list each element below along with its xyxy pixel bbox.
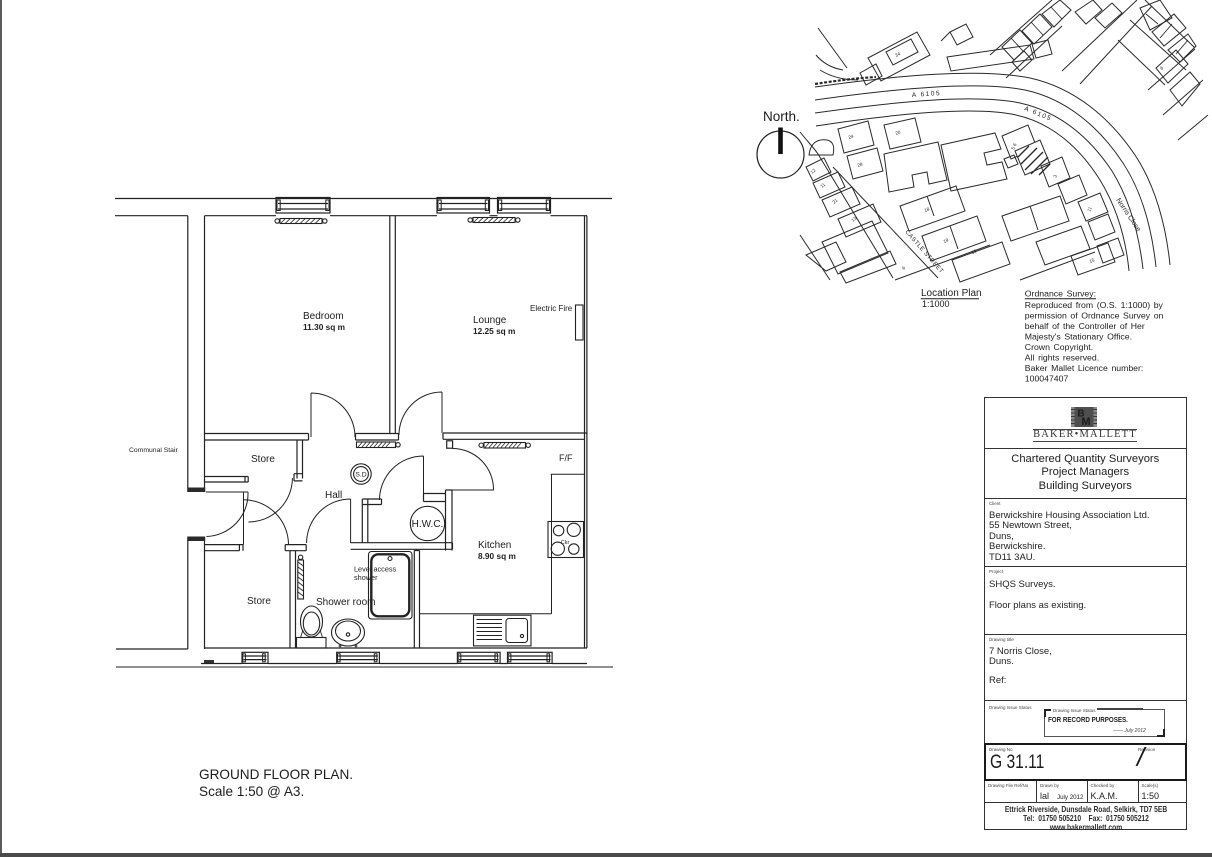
svg-text:Reproduced from (O.S. 1:1000): Reproduced from (O.S. 1:1000) by	[1025, 300, 1164, 310]
svg-text:28: 28	[857, 161, 864, 167]
svg-text:6: 6	[901, 265, 907, 271]
svg-text:15: 15	[1089, 257, 1096, 264]
svg-text:19: 19	[943, 237, 950, 244]
svg-text:100047407: 100047407	[1025, 374, 1069, 384]
svg-text:Norris Close: Norris Close	[1114, 197, 1141, 233]
svg-text:behalf of the Controller of He: behalf of the Controller of Her	[1025, 321, 1145, 331]
svg-text:18: 18	[924, 206, 931, 213]
svg-text:Baker Mallet Licence number:: Baker Mallet Licence number:	[1025, 363, 1144, 373]
svg-text:All rights reserved.: All rights reserved.	[1025, 353, 1099, 363]
svg-text:Ordnance Survey:: Ordnance Survey:	[1025, 289, 1096, 299]
svg-text:11: 11	[819, 182, 826, 189]
svg-text:20: 20	[895, 129, 902, 135]
svg-text:5 6: 5 6	[1010, 142, 1017, 150]
svg-text:Location Plan: Location Plan	[921, 288, 982, 299]
svg-text:M: M	[1081, 416, 1090, 427]
svg-text:permission of Ordnance Survey: permission of Ordnance Survey on	[1025, 311, 1164, 321]
svg-text:Crown Copyright.: Crown Copyright.	[1025, 342, 1093, 352]
svg-text:A 6105: A 6105	[912, 90, 942, 99]
svg-text:8: 8	[1159, 65, 1165, 70]
svg-text:12: 12	[809, 167, 816, 174]
svg-text:11: 11	[1086, 206, 1093, 213]
svg-text:34: 34	[894, 51, 901, 58]
svg-text:21: 21	[831, 197, 838, 204]
svg-text:CASTLE STREET: CASTLE STREET	[903, 229, 944, 275]
svg-text:3: 3	[1052, 174, 1058, 179]
svg-text:13: 13	[850, 215, 857, 222]
svg-text:24: 24	[848, 133, 855, 139]
svg-text:10: 10	[971, 248, 978, 255]
svg-text:1:1000: 1:1000	[922, 299, 950, 309]
svg-text:Majesty's Stationary Office.: Majesty's Stationary Office.	[1025, 332, 1132, 342]
